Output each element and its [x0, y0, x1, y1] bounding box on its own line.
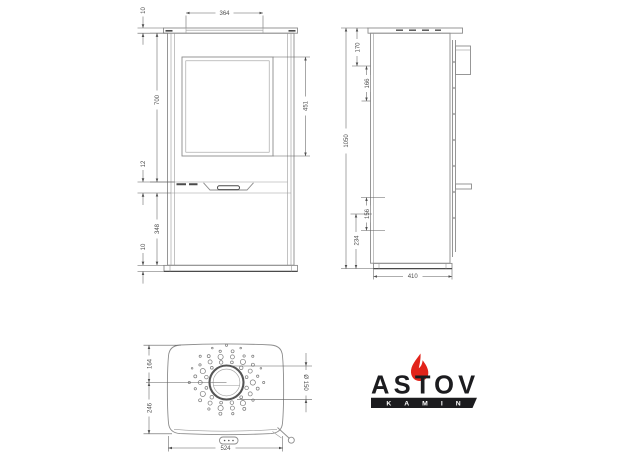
dim-side-outlet-spacing: 166 — [365, 78, 371, 89]
dim-front-lower-height: 348 — [155, 223, 161, 234]
rosette-hole — [256, 387, 259, 390]
front-glass-frame — [182, 57, 273, 156]
rosette-hole — [208, 408, 210, 410]
rosette-hole — [245, 386, 249, 390]
top-handle-dots — [224, 440, 234, 442]
flue-rosette — [188, 344, 265, 415]
dim-364-ext — [186, 16, 263, 28]
dim-10bot-ext — [138, 265, 165, 271]
rosette-hole — [232, 413, 234, 415]
rosette-hole — [240, 396, 243, 399]
brand-name: ASTOV — [371, 372, 479, 400]
side-view: 1050 170 166 156 234 410 — [341, 28, 472, 280]
rosette-hole — [205, 387, 208, 390]
rosette-hole — [245, 376, 248, 379]
rosette-hole — [239, 366, 243, 370]
front-top-cap — [164, 28, 298, 33]
side-rear-panel-holes — [453, 61, 455, 219]
rosette-hole — [243, 407, 246, 410]
rosette-hole — [218, 406, 223, 411]
front-view: 364 10 700 12 348 10 451 — [138, 7, 311, 284]
rosette-hole — [210, 366, 213, 369]
front-door-handle — [218, 186, 240, 190]
rosette-hole — [194, 388, 196, 390]
technical-drawing-page: 364 10 700 12 348 10 451 — [0, 0, 624, 460]
front-base-plate — [164, 265, 298, 271]
rosette-hole — [248, 369, 252, 373]
rosette-hole — [200, 369, 205, 374]
rosette-hole — [199, 364, 201, 366]
dim-front-glass-height: 451 — [304, 100, 310, 111]
side-body — [371, 33, 451, 263]
top-outline — [167, 344, 283, 435]
rosette-hole — [257, 375, 259, 377]
front-top-cap-inset — [186, 28, 263, 33]
side-rear-tab — [456, 184, 472, 189]
dim-front-base-thickness: 10 — [141, 243, 147, 250]
rosette-hole — [230, 406, 234, 410]
side-base-ticks — [379, 263, 446, 268]
dim-top-width: 524 — [220, 446, 231, 452]
rosette-hole — [250, 380, 255, 385]
rosette-hole — [240, 401, 245, 406]
rosette-hole — [208, 360, 212, 364]
dim-top-flue-diameter: Ø 150 — [302, 374, 308, 391]
rosette-hole — [248, 392, 252, 396]
dim-side-rear-lower: 234 — [354, 235, 360, 246]
top-view: 164 246 524 Ø 150 — [144, 344, 313, 452]
side-base-plate — [374, 263, 453, 268]
rosette-hole — [205, 375, 209, 379]
rosette-hole — [218, 354, 223, 359]
rosette-hole — [219, 361, 223, 365]
top-lever-knob — [288, 437, 294, 443]
rosette-hole — [230, 401, 234, 405]
dim-top-flue-to-rear: 164 — [147, 358, 153, 369]
brand-logo: ASTOV KAMIN — [371, 354, 479, 409]
side-rear-panel — [453, 40, 456, 257]
rosette-hole — [200, 391, 205, 396]
rosette-hole — [219, 350, 221, 352]
dim-side-depth: 410 — [408, 274, 419, 280]
rosette-hole — [210, 395, 214, 399]
dim-12-ext — [138, 182, 175, 193]
rosette-hole — [240, 347, 242, 349]
dim-front-gap: 12 — [141, 160, 147, 167]
front-base-ticks — [170, 265, 292, 271]
rosette-hole — [191, 367, 193, 369]
rosette-hole — [243, 355, 245, 357]
rosette-hole — [252, 355, 254, 357]
rosette-hole — [231, 361, 234, 364]
dim-side-top-offset: 170 — [355, 42, 361, 53]
dim-side-overall-height: 1050 — [344, 134, 350, 148]
front-body — [168, 33, 295, 265]
rosette-hole — [220, 401, 223, 404]
rosette-hole — [208, 401, 212, 405]
rosette-hole — [260, 367, 262, 369]
top-front-edge-line — [174, 429, 277, 431]
dim-front-upper-height: 700 — [155, 94, 161, 105]
rosette-hole — [225, 344, 227, 346]
rosette-hole — [211, 347, 213, 349]
rosette-hole — [194, 375, 197, 378]
rosette-hole — [199, 355, 201, 357]
front-glass-inner — [186, 61, 269, 152]
dim-top-flue-to-front: 246 — [147, 402, 153, 413]
dim-10top-ext — [138, 28, 168, 33]
dim-front-cap-thickness: 10 — [141, 7, 147, 14]
brand-subname: KAMIN — [386, 401, 473, 408]
rosette-hole — [219, 412, 222, 415]
stove-dimension-drawing: 364 10 700 12 348 10 451 — [0, 0, 624, 460]
rosette-hole — [199, 399, 202, 402]
dim-front-top-width: 364 — [219, 11, 230, 17]
dim-side-rear-upper: 156 — [365, 208, 371, 219]
rosette-hole — [231, 350, 234, 353]
rosette-hole — [263, 381, 265, 383]
rosette-hole — [240, 359, 245, 364]
rosette-hole — [230, 355, 234, 359]
rosette-hole — [207, 355, 210, 358]
